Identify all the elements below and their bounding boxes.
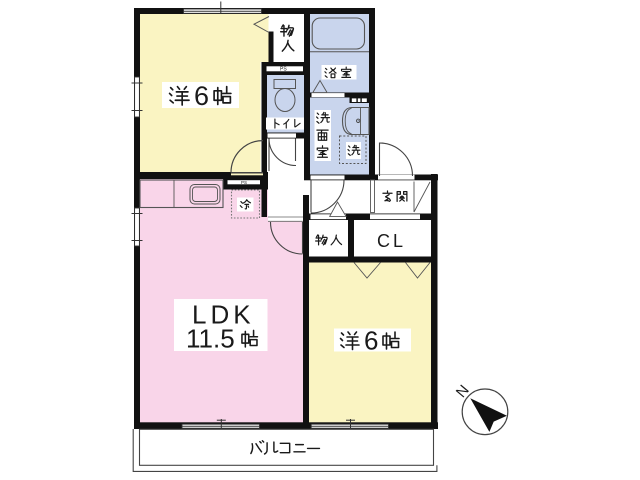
svg-text:11.5: 11.5	[186, 324, 235, 354]
svg-text:6: 6	[194, 81, 209, 111]
svg-text:PS: PS	[241, 180, 247, 185]
svg-text:6: 6	[364, 326, 378, 356]
svg-text:PS: PS	[280, 67, 287, 73]
svg-text:CL: CL	[377, 231, 406, 251]
